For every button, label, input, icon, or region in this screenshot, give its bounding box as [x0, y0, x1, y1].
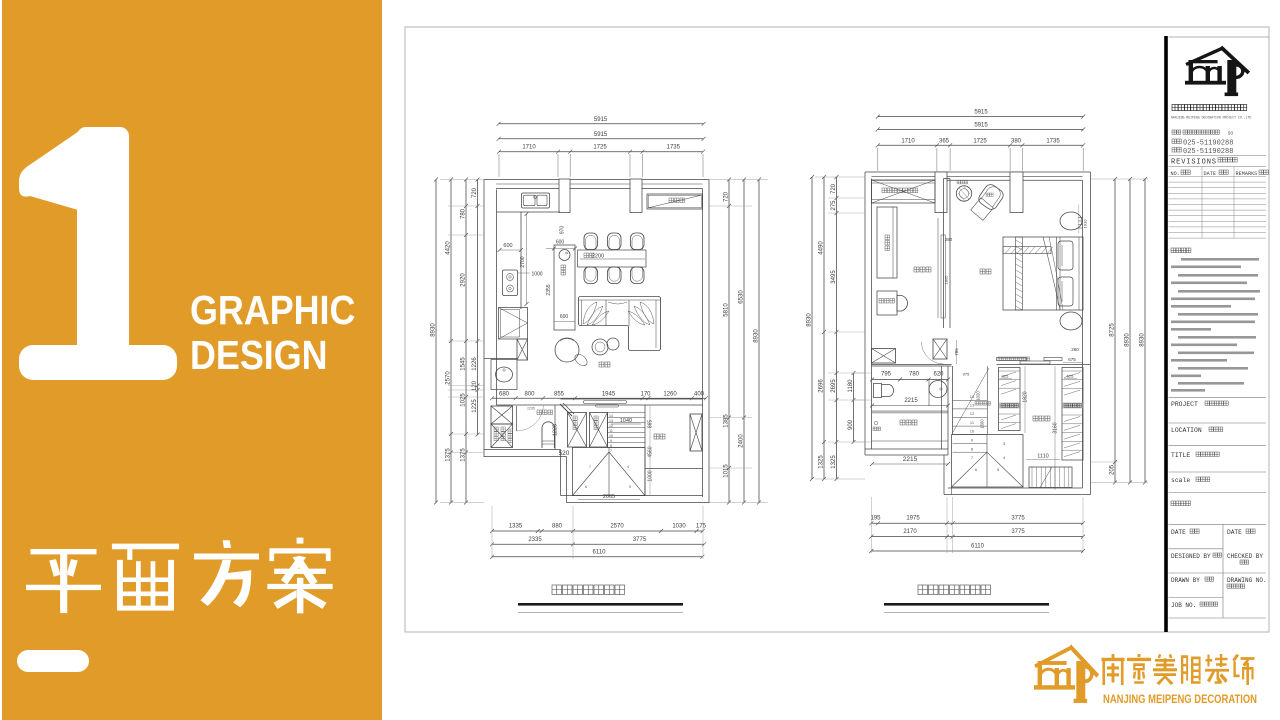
svg-text:600: 600 — [560, 314, 569, 320]
svg-text:1180: 1180 — [848, 379, 854, 393]
svg-text:TITLE: TITLE — [1171, 452, 1190, 459]
svg-text:1110: 1110 — [1037, 454, 1048, 460]
svg-text:2920: 2920 — [461, 273, 467, 287]
svg-text:680: 680 — [499, 391, 510, 397]
svg-text:600: 600 — [503, 243, 512, 249]
svg-text:7: 7 — [610, 449, 612, 453]
svg-text:170: 170 — [640, 391, 651, 397]
svg-text:720: 720 — [831, 183, 837, 194]
svg-text:1385: 1385 — [724, 414, 730, 428]
svg-text:865: 865 — [648, 420, 654, 429]
svg-text:3775: 3775 — [633, 537, 647, 543]
svg-text:10: 10 — [970, 428, 975, 433]
svg-text:10: 10 — [609, 434, 613, 438]
svg-text:1945: 1945 — [602, 391, 616, 397]
svg-text:93: 93 — [1228, 131, 1234, 136]
svg-text:5915: 5915 — [594, 132, 608, 138]
svg-text:1710: 1710 — [522, 145, 536, 151]
svg-text:3775: 3775 — [1011, 529, 1025, 535]
svg-text:3: 3 — [1003, 441, 1006, 446]
svg-text:1725: 1725 — [593, 145, 607, 151]
svg-text:3495: 3495 — [831, 270, 837, 284]
svg-text:6: 6 — [585, 485, 587, 489]
svg-text:720: 720 — [472, 187, 478, 198]
svg-text:900: 900 — [848, 419, 854, 430]
svg-text:6: 6 — [975, 467, 978, 472]
svg-text:2570: 2570 — [446, 371, 452, 385]
svg-text:2570: 2570 — [610, 524, 624, 530]
svg-text:400: 400 — [694, 391, 705, 397]
svg-text:1725: 1725 — [973, 138, 987, 144]
svg-text:975: 975 — [963, 372, 970, 377]
svg-text:11: 11 — [970, 420, 975, 425]
svg-text:625: 625 — [1067, 374, 1074, 379]
svg-text:675: 675 — [1068, 357, 1076, 362]
svg-text:1260: 1260 — [663, 391, 677, 397]
svg-text:280: 280 — [1071, 347, 1079, 352]
svg-text:2200: 2200 — [592, 254, 604, 260]
svg-text:1735: 1735 — [1046, 138, 1060, 144]
svg-text:1805: 1805 — [944, 275, 949, 285]
svg-text:620: 620 — [933, 372, 944, 378]
svg-text:12: 12 — [609, 424, 613, 428]
svg-text:9: 9 — [610, 439, 612, 443]
svg-text:4: 4 — [627, 465, 629, 469]
svg-text:2700: 2700 — [520, 256, 526, 267]
svg-text:2065: 2065 — [603, 494, 615, 500]
svg-text:13: 13 — [609, 419, 613, 423]
svg-text:4490: 4490 — [819, 241, 825, 255]
svg-text:8930: 8930 — [754, 329, 760, 343]
svg-text:1225: 1225 — [553, 424, 559, 436]
svg-text:13: 13 — [970, 403, 975, 408]
svg-text:600: 600 — [556, 240, 565, 246]
svg-text:280: 280 — [945, 237, 953, 242]
svg-text:380: 380 — [1011, 138, 1022, 144]
svg-text:scale: scale — [1171, 477, 1190, 484]
svg-text:PROJECT: PROJECT — [1171, 401, 1198, 408]
svg-text:4: 4 — [1003, 455, 1006, 460]
svg-text:970: 970 — [560, 226, 566, 235]
svg-text:7: 7 — [971, 455, 974, 460]
svg-text:2295: 2295 — [527, 407, 535, 411]
svg-text:1225: 1225 — [472, 399, 478, 413]
svg-text:1030: 1030 — [672, 524, 686, 530]
svg-text:720: 720 — [724, 191, 730, 202]
svg-text:11: 11 — [609, 429, 613, 433]
svg-text:NANJING MEIPENG DECORATION: NANJING MEIPENG DECORATION — [1103, 692, 1257, 706]
svg-text:DATE: DATE — [1171, 529, 1186, 536]
svg-text:3160: 3160 — [1053, 422, 1059, 433]
svg-text:5810: 5810 — [724, 303, 730, 317]
svg-text:795: 795 — [881, 372, 892, 378]
svg-text:1375: 1375 — [461, 448, 467, 462]
svg-text:5: 5 — [997, 467, 1000, 472]
svg-text:1820: 1820 — [1023, 391, 1029, 402]
svg-text:1040: 1040 — [620, 418, 632, 424]
svg-text:6530: 6530 — [739, 290, 745, 304]
svg-text:8930: 8930 — [1125, 333, 1131, 347]
svg-text:1975: 1975 — [906, 516, 920, 522]
svg-text:2355: 2355 — [546, 284, 552, 295]
svg-text:CHECKED BY: CHECKED BY — [1227, 553, 1263, 560]
svg-text:800: 800 — [524, 391, 535, 397]
svg-text:025-51190288: 025-51190288 — [1183, 148, 1233, 156]
svg-text:1335: 1335 — [509, 524, 523, 530]
svg-text:1325: 1325 — [819, 455, 825, 469]
svg-text:14: 14 — [970, 394, 975, 399]
svg-text:365: 365 — [939, 138, 950, 144]
svg-text:1000: 1000 — [648, 470, 654, 481]
svg-text:2696: 2696 — [819, 379, 825, 393]
svg-text:DATE: DATE — [1204, 171, 1216, 177]
svg-text:6110: 6110 — [593, 549, 607, 555]
svg-text:5915: 5915 — [974, 110, 988, 116]
svg-text:NO.: NO. — [1171, 171, 1180, 177]
svg-text:1325: 1325 — [831, 455, 837, 469]
svg-text:5915: 5915 — [594, 117, 608, 123]
svg-text:1015: 1015 — [724, 464, 730, 478]
svg-text:275: 275 — [831, 200, 837, 211]
svg-text:780: 780 — [909, 372, 920, 378]
svg-text:1710: 1710 — [901, 138, 915, 144]
svg-text:DATE: DATE — [1227, 529, 1242, 536]
svg-text:2170: 2170 — [903, 529, 917, 535]
svg-text:5: 5 — [629, 485, 631, 489]
svg-text:7: 7 — [589, 465, 591, 469]
svg-text:025-51190288: 025-51190288 — [1183, 140, 1233, 148]
svg-text:4420: 4420 — [446, 241, 452, 255]
svg-text:12: 12 — [970, 411, 975, 416]
svg-text:5915: 5915 — [974, 122, 988, 128]
svg-text:DRAWING NO.: DRAWING NO. — [1227, 577, 1267, 584]
svg-text:1000: 1000 — [531, 272, 542, 278]
svg-text:8930: 8930 — [431, 323, 437, 337]
svg-text:855: 855 — [554, 391, 565, 397]
svg-text:4560: 4560 — [648, 446, 654, 457]
svg-text:2335: 2335 — [528, 537, 542, 543]
svg-text:LOCATION: LOCATION — [1171, 427, 1202, 434]
svg-text:NANJING MEIPENG DECORATION PRO: NANJING MEIPENG DECORATION PROJECT CO.,L… — [1171, 116, 1251, 120]
svg-text:1226: 1226 — [472, 357, 478, 371]
svg-text:2215: 2215 — [903, 456, 918, 463]
svg-text:2695: 2695 — [831, 379, 837, 393]
svg-text:8930: 8930 — [807, 313, 813, 327]
svg-text:8725: 8725 — [1110, 323, 1116, 337]
svg-text:2400: 2400 — [739, 434, 745, 448]
svg-text:2215: 2215 — [904, 398, 918, 404]
svg-text:925: 925 — [1002, 374, 1009, 379]
svg-text:175: 175 — [696, 524, 707, 530]
svg-text:DRAWN BY: DRAWN BY — [1171, 577, 1200, 584]
svg-text:JOB NO.: JOB NO. — [1171, 602, 1196, 609]
svg-text:1735: 1735 — [667, 145, 681, 151]
svg-text:1910: 1910 — [1083, 219, 1088, 229]
svg-text:520: 520 — [559, 450, 570, 457]
svg-text:1025: 1025 — [461, 393, 467, 407]
svg-text:8930: 8930 — [1140, 333, 1146, 347]
svg-text:195: 195 — [870, 516, 881, 522]
svg-text:REVISIONS: REVISIONS — [1171, 159, 1217, 167]
svg-text:1020: 1020 — [976, 391, 981, 401]
svg-text:3775: 3775 — [1011, 516, 1025, 522]
svg-text:1545: 1545 — [461, 357, 467, 371]
svg-text:780: 780 — [461, 208, 467, 219]
svg-text:14: 14 — [609, 414, 613, 418]
svg-text:205: 205 — [1110, 464, 1116, 475]
svg-text:8: 8 — [971, 446, 974, 451]
svg-text:9: 9 — [971, 438, 974, 443]
svg-text:DESIGNED BY: DESIGNED BY — [1171, 553, 1211, 560]
svg-text:6110: 6110 — [971, 543, 985, 549]
svg-text:REMARKS: REMARKS — [1236, 171, 1258, 177]
svg-text:880: 880 — [552, 524, 563, 530]
svg-text:1500: 1500 — [980, 419, 985, 429]
svg-text:1375: 1375 — [446, 448, 452, 462]
